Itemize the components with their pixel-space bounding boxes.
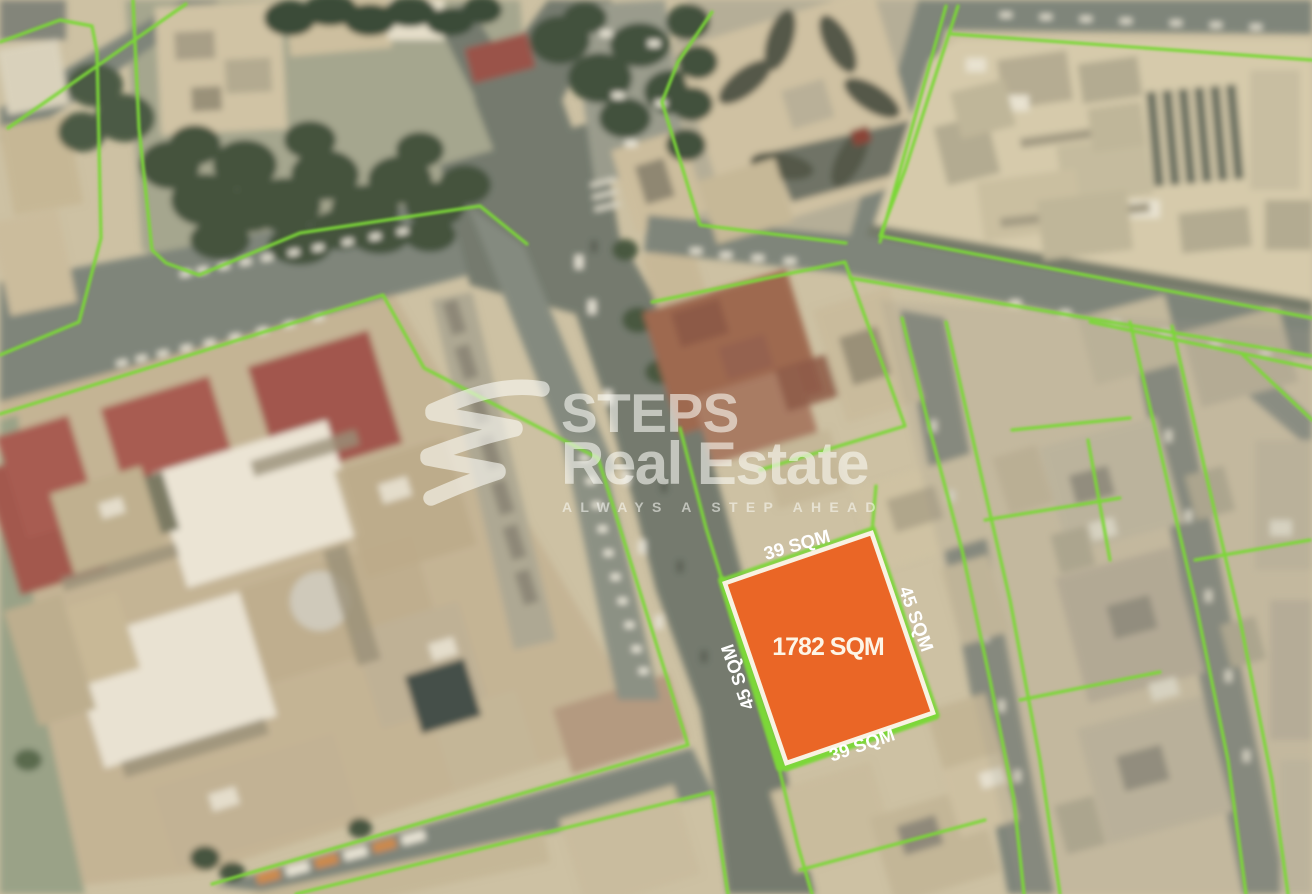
svg-text:1782 SQM: 1782 SQM: [772, 633, 884, 661]
svg-text:ALWAYS A STEP AHEAD: ALWAYS A STEP AHEAD: [562, 499, 884, 515]
svg-text:Real Estate: Real Estate: [561, 430, 868, 497]
